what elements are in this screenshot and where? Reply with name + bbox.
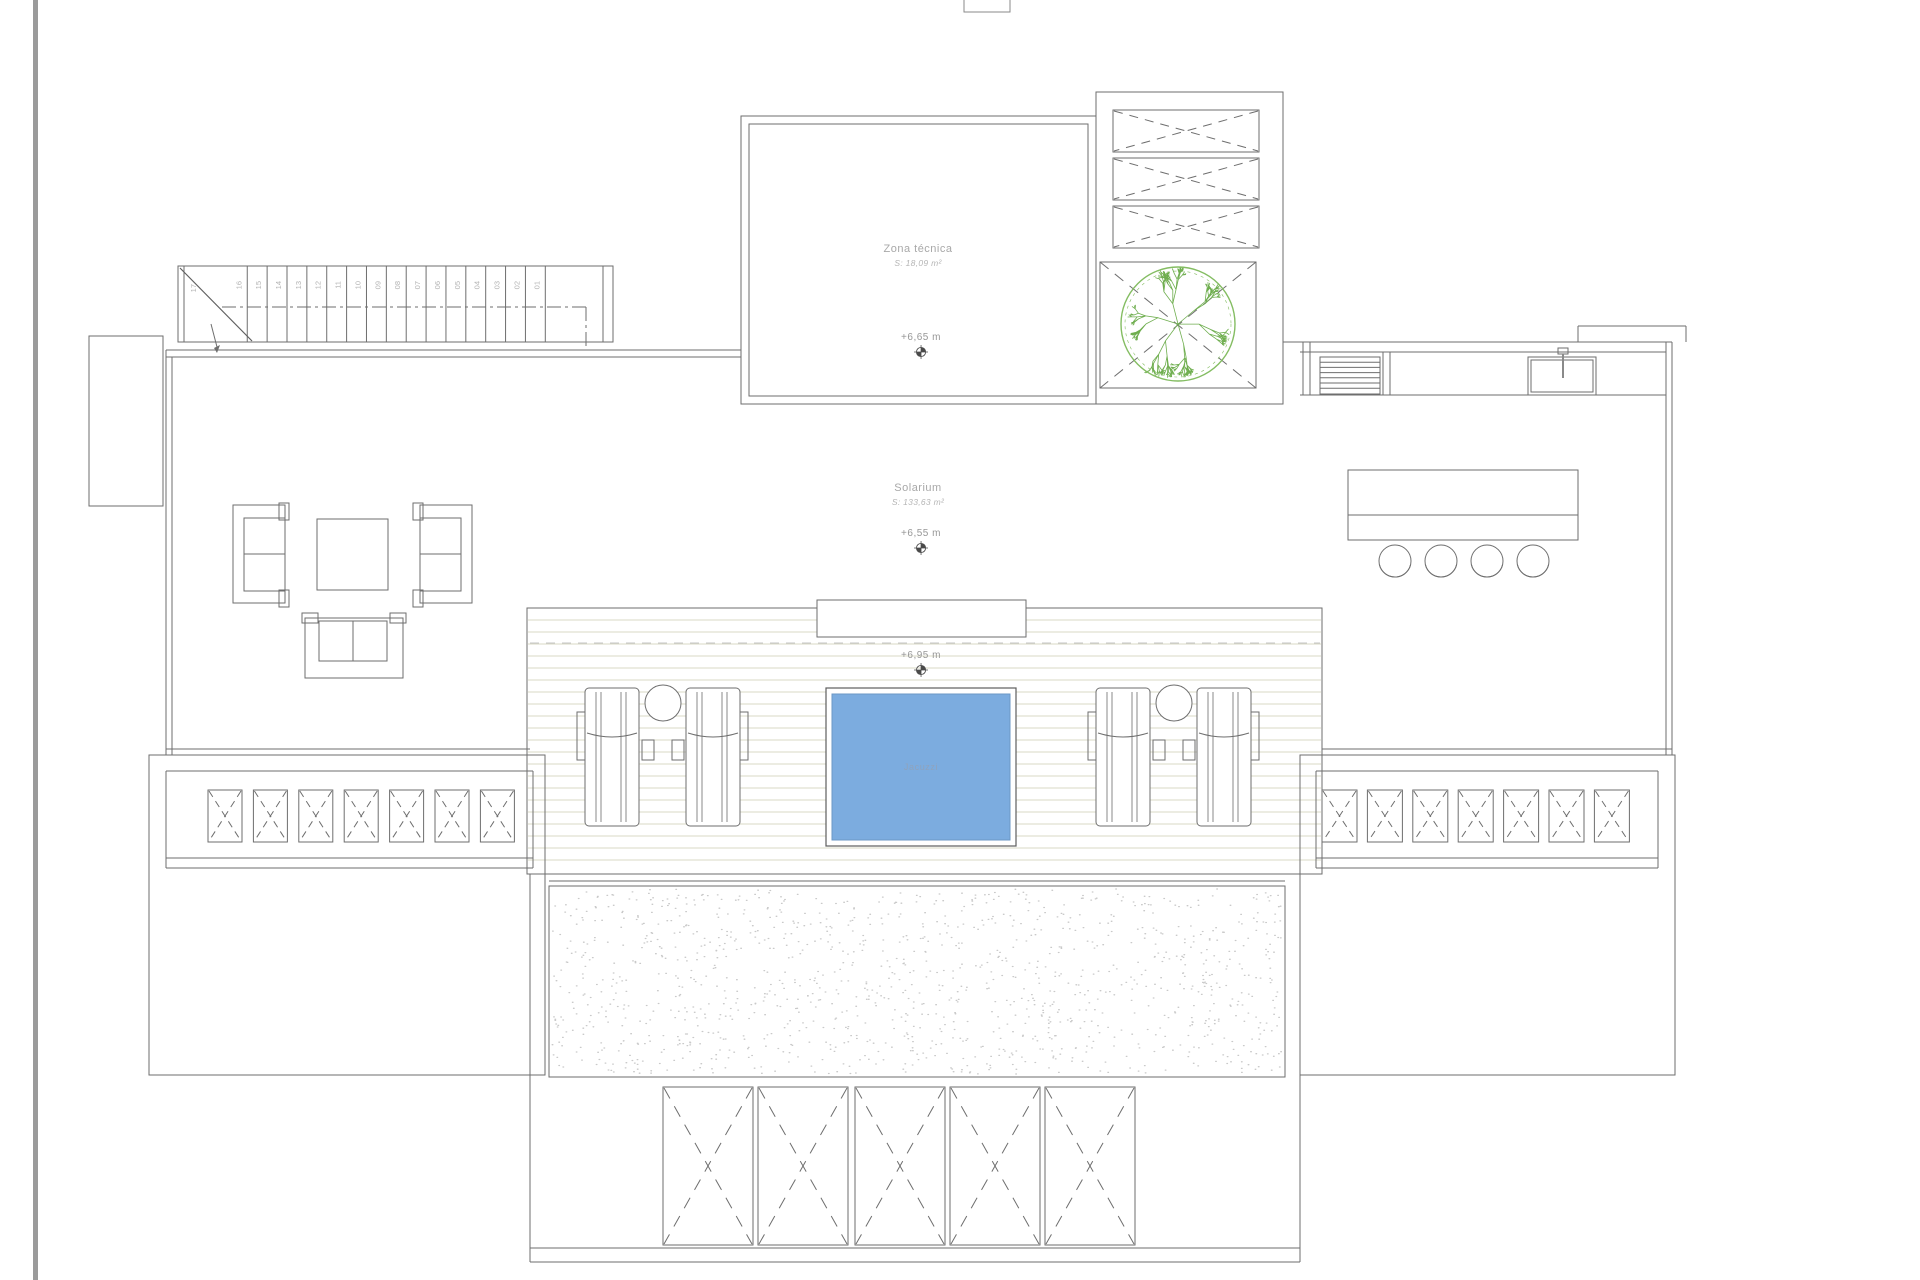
jacuzzi-label: Jacuzzi	[904, 762, 938, 772]
svg-text:11: 11	[334, 281, 343, 289]
zona-tecnica-area: S: 18,09 m²	[884, 258, 953, 268]
svg-text:13: 13	[294, 281, 303, 289]
svg-text:08: 08	[393, 281, 402, 289]
solarium-name: Solarium	[892, 482, 944, 494]
lounge-furniture	[233, 503, 472, 678]
zona-tecnica-name: Zona técnica	[884, 243, 953, 255]
zona-tecnica-level: +6,65 m	[901, 332, 941, 359]
rooftop-floor-plan: 0102030405060708091011121314151617 Zona …	[0, 0, 1920, 1280]
svg-text:14: 14	[274, 281, 283, 289]
level-marker-icon	[914, 541, 928, 555]
svg-text:05: 05	[453, 281, 462, 289]
svg-text:03: 03	[493, 281, 502, 289]
svg-text:02: 02	[512, 281, 521, 289]
zona-tecnica-label: Zona técnica S: 18,09 m²	[884, 243, 953, 268]
bar-counter-and-stools	[1348, 470, 1578, 577]
solarium-level: +6,55 m	[901, 528, 941, 555]
technical-room-and-vents	[741, 92, 1283, 404]
solarium-area: S: 133,63 m²	[892, 497, 944, 507]
tree-planter	[1121, 267, 1235, 381]
zona-tecnica-level-value: +6,65 m	[901, 332, 941, 343]
outdoor-kitchen-counter	[1283, 342, 1672, 395]
svg-text:16: 16	[234, 281, 243, 289]
svg-text:01: 01	[532, 281, 541, 289]
level-marker-icon	[914, 663, 928, 677]
page-edge-marks	[33, 0, 1010, 1280]
plan-linework: 0102030405060708091011121314151617	[0, 0, 1920, 1280]
svg-text:15: 15	[254, 281, 263, 289]
svg-text:04: 04	[473, 281, 482, 289]
staircase: 0102030405060708091011121314151617	[178, 266, 613, 353]
deck-level: +6,95 m	[901, 650, 941, 677]
deck-level-value: +6,95 m	[901, 650, 941, 661]
solarium-label: Solarium S: 133,63 m²	[892, 482, 944, 507]
svg-text:09: 09	[373, 281, 382, 289]
svg-text:06: 06	[433, 281, 442, 289]
svg-text:12: 12	[314, 281, 323, 289]
level-marker-icon	[914, 345, 928, 359]
solarium-level-value: +6,55 m	[901, 528, 941, 539]
svg-text:10: 10	[353, 281, 362, 289]
gravel-and-pergola	[530, 874, 1300, 1262]
svg-text:07: 07	[413, 281, 422, 289]
